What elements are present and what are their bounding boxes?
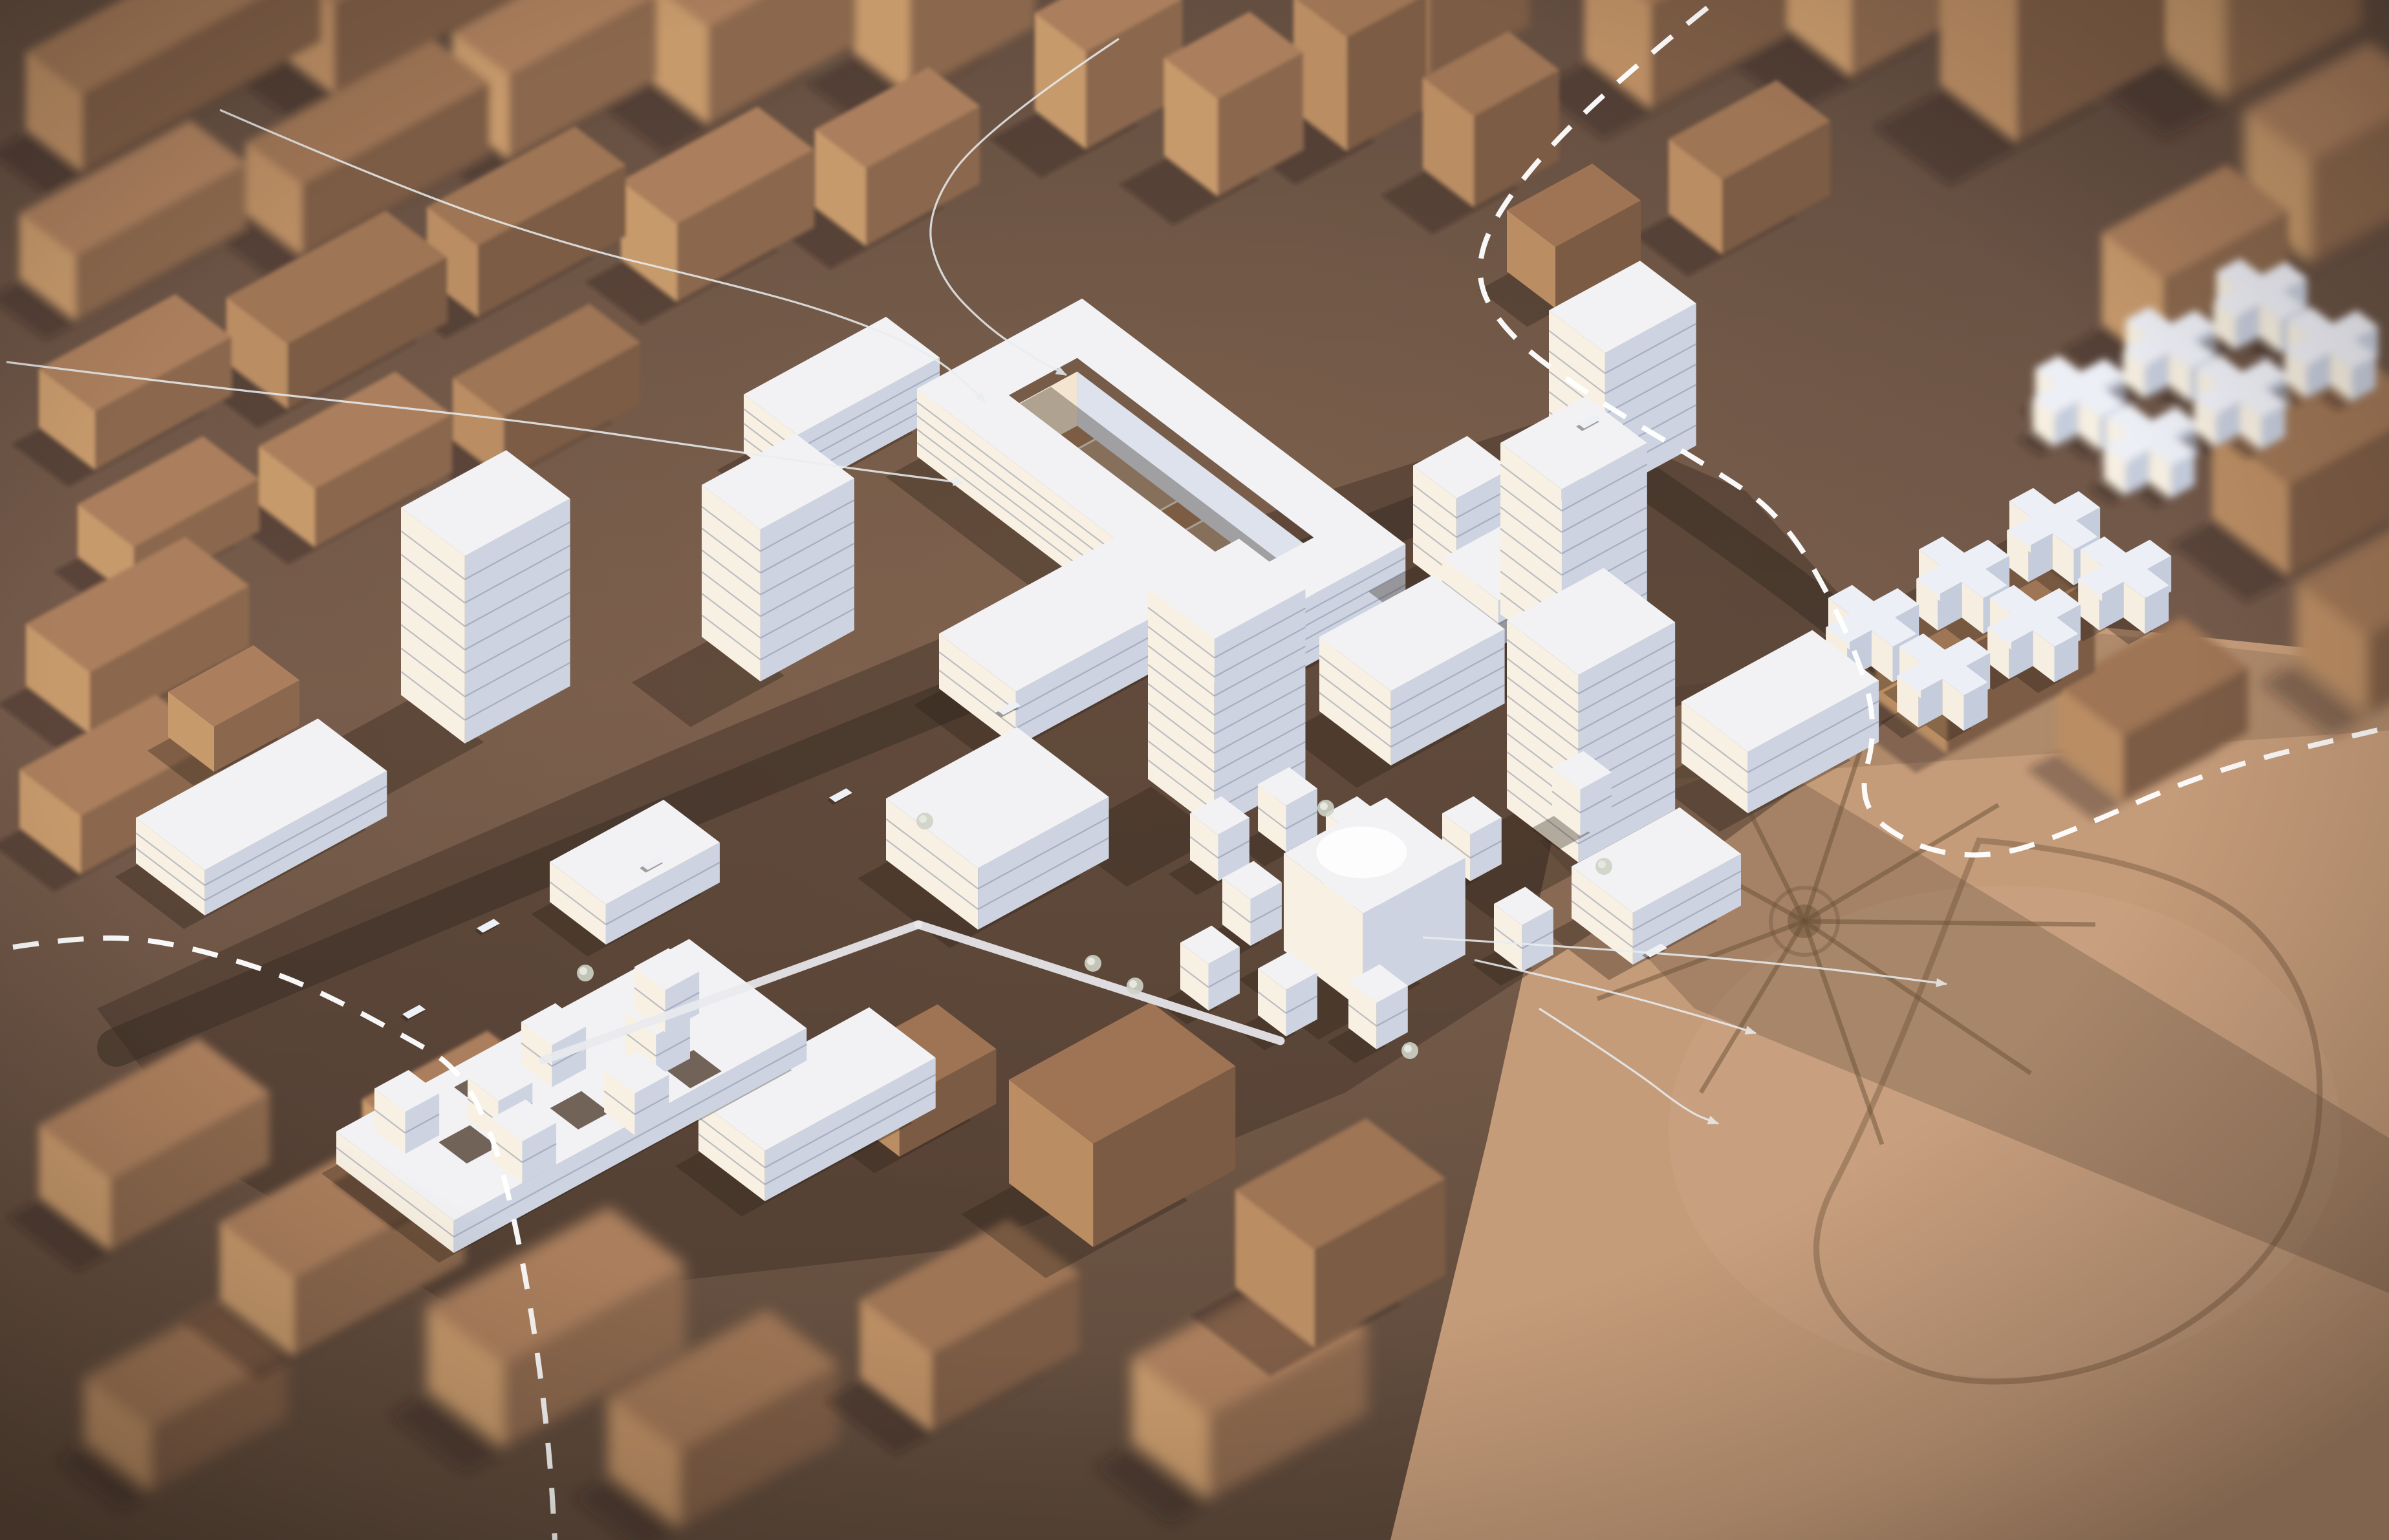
render-canvas: [0, 0, 2389, 1540]
masterplan-render: Tilt-shift aerial render of an urban mas…: [0, 0, 2389, 1540]
vignette-overlay: [0, 0, 2389, 1540]
